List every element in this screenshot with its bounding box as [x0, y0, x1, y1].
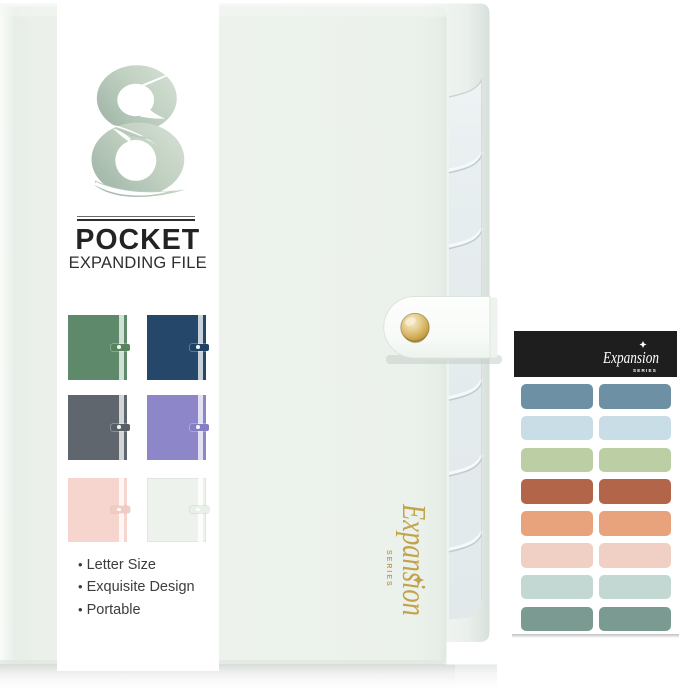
svg-text:Expansion: Expansion [603, 348, 659, 367]
svg-text:SERIES: SERIES [633, 368, 657, 373]
svg-text:Expansion: Expansion [395, 503, 433, 616]
svg-text:SERIES: SERIES [385, 550, 392, 588]
